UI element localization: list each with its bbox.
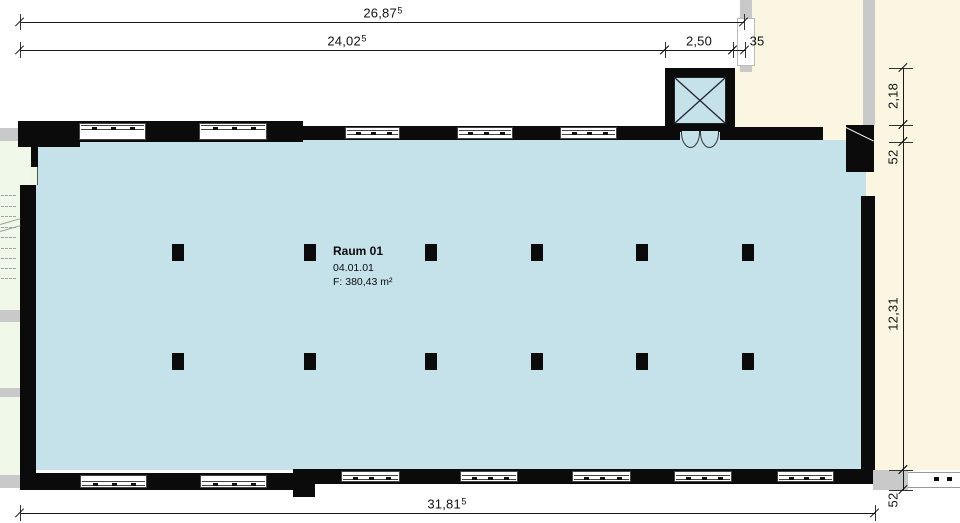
dimension-label-total-top: 26,875: [363, 6, 402, 21]
window-frame-band: [81, 125, 144, 130]
window-frame-tick: [603, 132, 608, 135]
column: [425, 244, 437, 261]
column: [531, 353, 543, 370]
stair-tread: [1, 248, 16, 249]
column: [425, 353, 437, 370]
dimension-superscript: 5: [461, 497, 466, 507]
window-frame-band: [347, 130, 398, 135]
window-frame-tick: [356, 132, 361, 135]
left-gray-block-top: [0, 128, 18, 141]
stairwell-background-upper: [20, 147, 31, 185]
elevator-cabin: [674, 77, 726, 124]
column: [531, 244, 543, 261]
left-gray-block-mid2: [0, 388, 20, 397]
stair-tread: [1, 258, 16, 259]
dimension-line-total-top: [20, 22, 744, 23]
room-number: 04.01.01: [333, 261, 393, 275]
window-frame-tick: [488, 477, 493, 480]
window-frame-band: [562, 130, 615, 135]
window-opening: [345, 127, 400, 139]
dimension-line-inner-top: [20, 50, 665, 51]
wall-right: [861, 196, 875, 470]
window-frame-tick: [484, 132, 489, 135]
window-frame-band: [574, 475, 629, 480]
dimension-label-right-wall-a: 52: [886, 150, 901, 165]
window-frame-tick: [572, 132, 577, 135]
window-frame-band: [459, 130, 511, 135]
window-frame-tick: [371, 132, 376, 135]
window-frame-tick: [472, 477, 477, 480]
dimension-line-right-top: [903, 68, 904, 125]
wall-top-left-corner: [18, 121, 80, 147]
window-frame-band: [779, 475, 832, 480]
dimension-label-right-top: 2,18: [886, 83, 901, 109]
window-frame-tick: [820, 477, 825, 480]
dimension-superscript: 5: [397, 6, 402, 16]
stair-tread: [1, 216, 16, 217]
window-frame-tick: [617, 477, 622, 480]
wall-right-corner: [846, 125, 874, 172]
window-frame-tick: [92, 127, 97, 130]
stairwell-background: [0, 128, 20, 475]
adjacent-wall-strip: [863, 0, 875, 125]
stair-door-opening: [31, 167, 38, 185]
window-frame-tick: [600, 477, 605, 480]
window-frame-tick: [353, 477, 358, 480]
window-frame-tick: [251, 483, 256, 486]
window-opening: [80, 475, 147, 488]
window-opening: [457, 127, 513, 139]
floor-plan-canvas: 26,87524,0252,503531,8152,185212,3152 Ra…: [0, 0, 960, 523]
window-frame-tick: [130, 127, 135, 130]
window-frame-tick: [718, 477, 723, 480]
corner-break-line: [846, 127, 874, 141]
wall-bottom-left: [36, 473, 315, 490]
window-frame-tick: [93, 483, 98, 486]
dimension-line-room-depth: [903, 142, 904, 470]
window-frame-tick: [500, 132, 505, 135]
room-01-floor: [36, 140, 862, 470]
window-frame-band: [343, 475, 398, 480]
room-label: Raum 01 04.01.01 F: 380,43 m²: [333, 244, 393, 289]
dimension-label-room-depth: 12,31: [886, 297, 901, 331]
window-frame-tick: [251, 127, 256, 130]
window-frame-tick: [213, 483, 218, 486]
window-frame-tick: [213, 127, 218, 130]
window-frame-tick: [387, 132, 392, 135]
window-frame-tick: [369, 477, 374, 480]
window-frame-band: [201, 125, 265, 130]
window-opening: [460, 471, 518, 482]
window-opening: [674, 471, 732, 482]
window-frame-tick: [504, 477, 509, 480]
dimension-line-total-bottom: [20, 513, 875, 514]
facade-band-tick: [934, 477, 939, 481]
elevator-cross-icon: [675, 78, 725, 123]
window-opening: [199, 123, 267, 140]
column: [304, 353, 316, 370]
window-frame-tick: [804, 477, 809, 480]
window-frame-band: [202, 481, 265, 486]
stair-tread: [1, 195, 16, 196]
wall-left-stub: [31, 147, 38, 167]
wall-left: [20, 185, 36, 490]
dimension-label-inner-top: 24,025: [327, 34, 366, 49]
room-area: F: 380,43 m²: [333, 275, 393, 289]
column: [636, 244, 648, 261]
window-frame-tick: [468, 132, 473, 135]
column: [172, 244, 184, 261]
window-opening: [200, 475, 267, 488]
dimension-superscript: 5: [361, 34, 366, 44]
window-frame-tick: [232, 127, 237, 130]
window-opening: [572, 471, 631, 482]
left-gray-block-mid: [0, 310, 20, 322]
window-frame-tick: [584, 477, 589, 480]
window-frame-tick: [587, 132, 592, 135]
column: [636, 353, 648, 370]
right-opening-floor: [861, 172, 866, 196]
window-opening: [777, 471, 834, 482]
wall-top-right: [735, 127, 823, 140]
window-frame-tick: [702, 477, 707, 480]
window-frame-tick: [111, 127, 116, 130]
column: [742, 353, 754, 370]
left-gray-block-bottom: [0, 475, 20, 488]
column: [172, 353, 184, 370]
window-frame-band: [676, 475, 730, 480]
dimension-label-total-bottom: 31,815: [427, 497, 466, 512]
window-frame-tick: [789, 477, 794, 480]
column: [742, 244, 754, 261]
window-opening: [341, 471, 400, 482]
stair-tread: [1, 206, 16, 207]
window-opening: [560, 127, 617, 139]
room-name: Raum 01: [333, 244, 393, 258]
window-frame-tick: [686, 477, 691, 480]
window-opening: [79, 123, 146, 140]
window-frame-tick: [112, 483, 117, 486]
wall-bottom-step: [293, 469, 315, 497]
dimension-label-right-wall-b: 52: [886, 493, 901, 508]
dimension-line-elevator-width: [665, 50, 733, 51]
stair-tread: [1, 268, 16, 269]
window-frame-band: [462, 475, 516, 480]
facade-band-tick: [947, 477, 952, 481]
dimension-label-elevator-width: 2,50: [686, 34, 712, 49]
window-frame-tick: [131, 483, 136, 486]
window-frame-tick: [386, 477, 391, 480]
dimension-label-wall-thickness-top: 35: [750, 34, 765, 49]
column: [304, 244, 316, 261]
window-frame-band: [82, 481, 145, 486]
window-frame-tick: [232, 483, 237, 486]
stair-tread: [1, 237, 16, 238]
stair-tread: [1, 278, 16, 279]
